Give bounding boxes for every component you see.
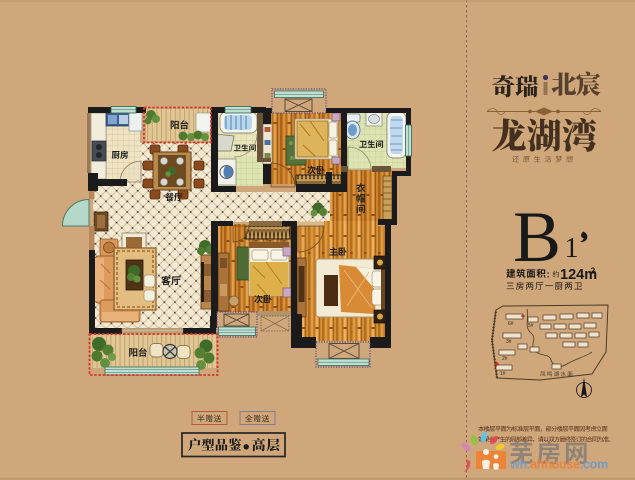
- svg-text:2: 2: [591, 266, 596, 276]
- svg-text:B: B: [513, 197, 561, 277]
- svg-text:1: 1: [565, 233, 579, 264]
- svg-text:wh.ahhouse.com: wh.ahhouse.com: [509, 458, 608, 472]
- svg-text::: :: [547, 270, 550, 281]
